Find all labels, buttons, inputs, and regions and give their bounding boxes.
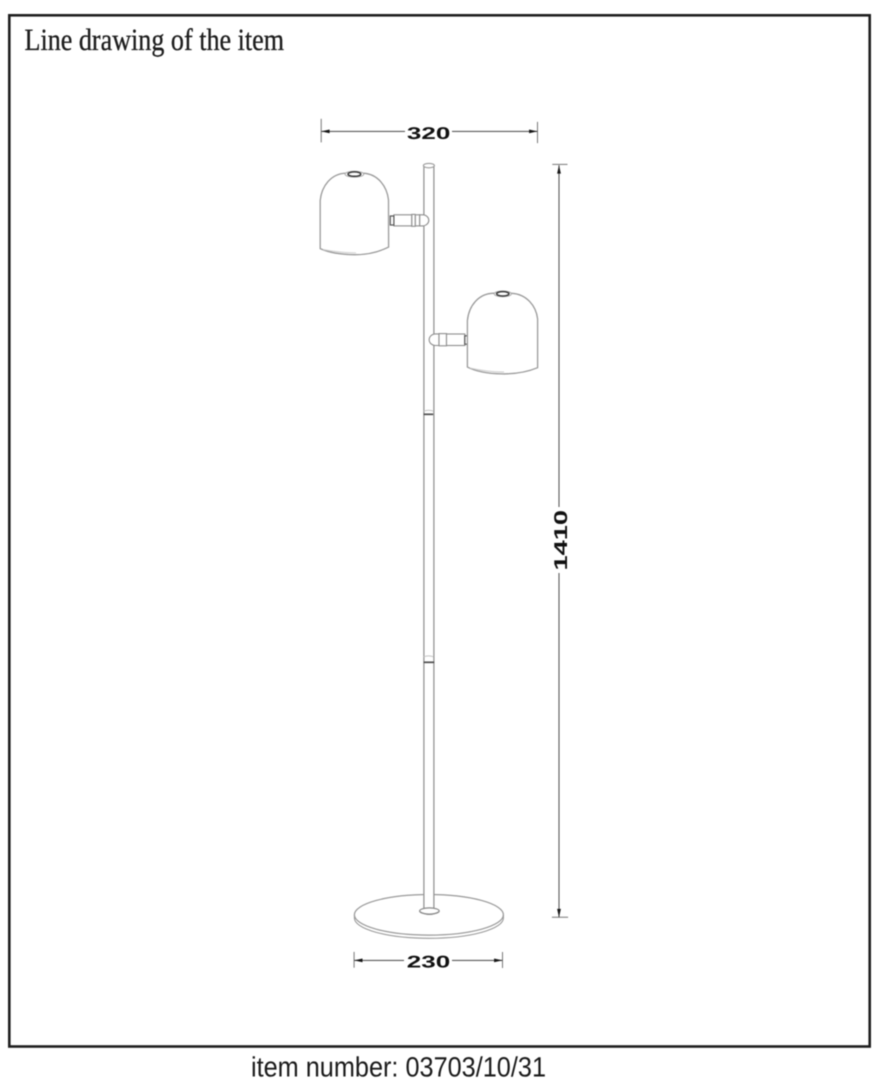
svg-text:1410: 1410	[550, 510, 571, 570]
svg-text:230: 230	[407, 952, 450, 971]
svg-text:Line drawing of the item: Line drawing of the item	[25, 22, 285, 57]
svg-text:item number: 03703/10/31: item number: 03703/10/31	[251, 1052, 546, 1082]
svg-text:320: 320	[407, 124, 450, 143]
